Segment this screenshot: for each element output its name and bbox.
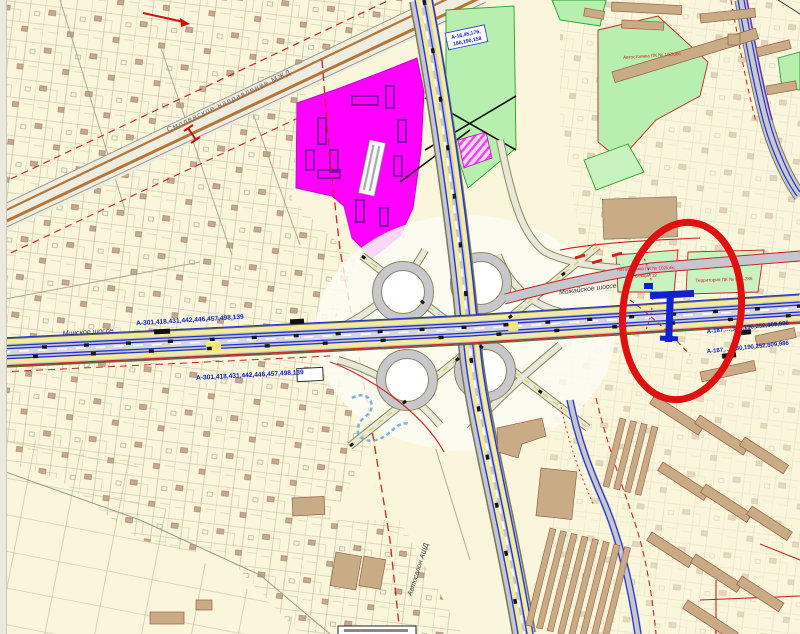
scan-edge xyxy=(0,0,6,634)
parking-1-label-line2: Секция 12 xyxy=(635,273,658,279)
bottom-label-box xyxy=(338,626,416,634)
map-canvas[interactable]: Смоленское направление МЖД Минское шоссе… xyxy=(0,0,800,634)
cadastral-map: Смоленское направление МЖД Минское шоссе… xyxy=(0,0,800,634)
